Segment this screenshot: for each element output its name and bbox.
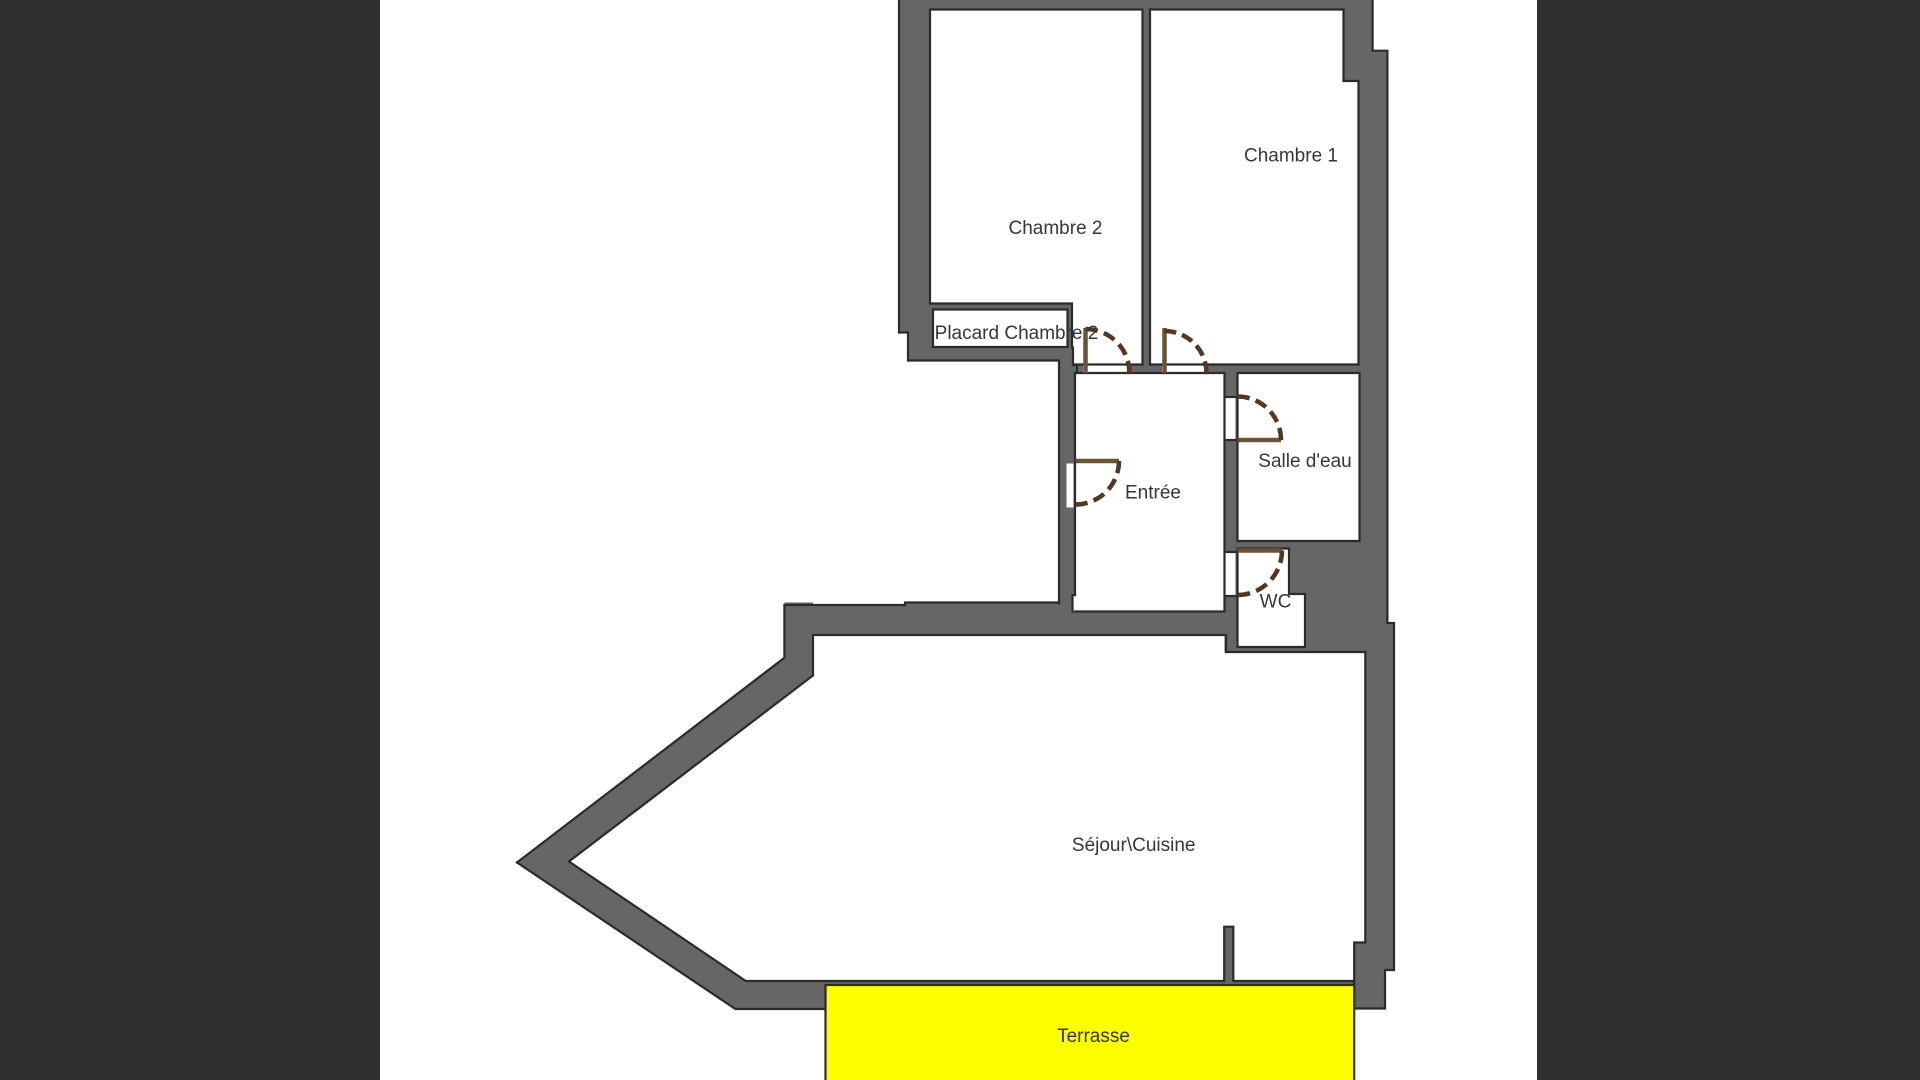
svg-text:Salle d'eau: Salle d'eau: [1258, 451, 1351, 472]
svg-text:Terrasse: Terrasse: [1057, 1026, 1130, 1047]
svg-text:Placard Chambre 2: Placard Chambre 2: [935, 323, 1099, 344]
svg-text:Entrée: Entrée: [1125, 483, 1181, 504]
svg-text:Séjour\Cuisine: Séjour\Cuisine: [1072, 835, 1196, 856]
svg-text:WC: WC: [1260, 592, 1292, 613]
svg-text:Chambre 2: Chambre 2: [1009, 218, 1103, 239]
svg-text:Chambre 1: Chambre 1: [1244, 146, 1338, 167]
